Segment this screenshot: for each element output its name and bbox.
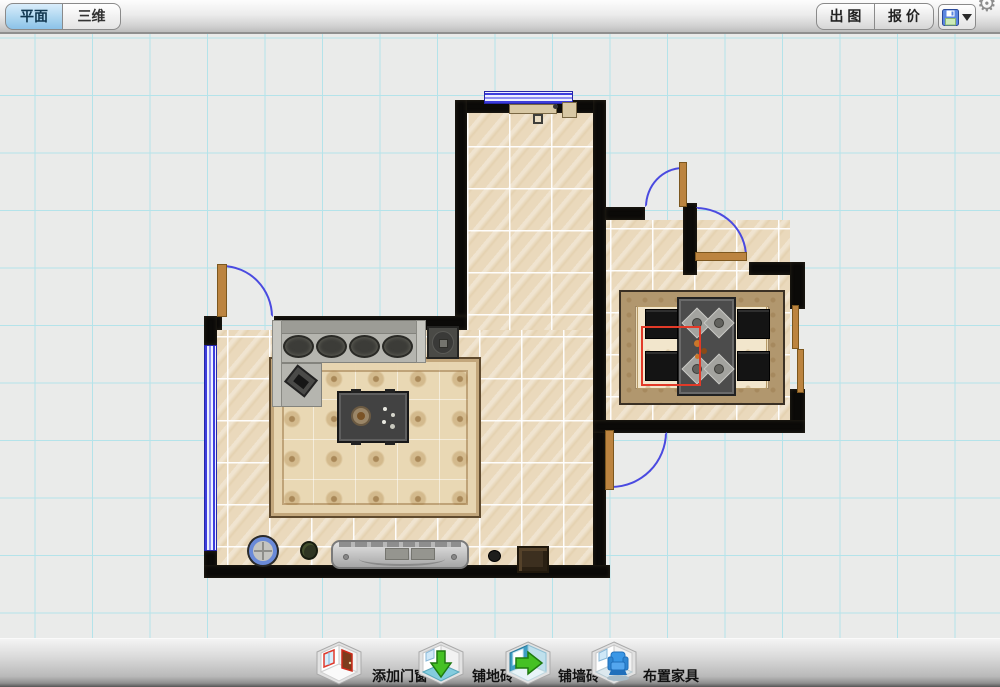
floor-fan[interactable]	[249, 537, 277, 565]
hall-console-table[interactable]	[509, 104, 557, 114]
side-table-lamp	[439, 339, 448, 348]
room-furniture-icon[interactable]	[588, 641, 640, 685]
output-buttons: 出 图 报 价	[816, 3, 934, 30]
petal	[391, 413, 395, 417]
tv-stand-knob	[343, 554, 349, 560]
dining-sw-door-swing-arc	[611, 432, 667, 488]
side-table[interactable]	[427, 326, 459, 359]
tray-inner	[293, 374, 309, 389]
tv-screen-arc	[359, 559, 445, 566]
corner-plant-box[interactable]	[517, 546, 549, 573]
living-door-swing-arc	[222, 265, 273, 317]
tv-stand-top-strip	[339, 542, 461, 547]
food-item	[701, 348, 707, 354]
save-button[interactable]	[938, 4, 976, 30]
quote-button[interactable]: 报 价	[875, 3, 934, 30]
sofa-cushion	[349, 335, 380, 358]
dining-chair[interactable]	[737, 351, 770, 381]
sofa-back[interactable]	[272, 320, 426, 334]
dining-chair[interactable]	[737, 309, 770, 339]
dining-east-wall-upper[interactable]	[790, 262, 805, 309]
small-dark-object[interactable]	[488, 550, 501, 562]
tv-stand-knob	[451, 554, 457, 560]
table-handle	[351, 441, 361, 445]
hall-small-stool[interactable]	[533, 114, 543, 124]
dining-northwest-wall[interactable]	[605, 207, 645, 220]
room-wall-tile-icon[interactable]	[502, 641, 554, 685]
gear-icon[interactable]: ⚙	[977, 0, 997, 17]
table-handle	[385, 389, 395, 393]
view-tabs: 平面 三维	[5, 3, 121, 30]
export-drawing-button[interactable]: 出 图	[816, 3, 875, 30]
save-dropdown-caret-icon[interactable]	[962, 14, 972, 21]
living-top-door[interactable]	[217, 264, 227, 317]
plate	[712, 362, 726, 376]
sofa-armrest-left	[272, 320, 282, 407]
living-left-wall-upper[interactable]	[204, 316, 217, 345]
sofa-armrest-right	[416, 320, 426, 363]
sofa-cushion	[283, 335, 314, 358]
potted-plant[interactable]	[300, 541, 318, 560]
dining-nw-door[interactable]	[679, 162, 687, 207]
hallway-window[interactable]	[484, 91, 573, 104]
table-handle	[385, 441, 395, 445]
dining-sliding-door-panel-1[interactable]	[792, 305, 799, 349]
toolbar-label-furniture: 布置家具	[643, 666, 699, 686]
corridor-east-wall[interactable]	[593, 100, 606, 578]
dining-sliding-door-panel-2[interactable]	[797, 349, 804, 393]
dining-nw-door-swing-arc	[645, 167, 683, 207]
floorplan-canvas[interactable]	[0, 34, 1000, 638]
room-floor-tile-icon[interactable]	[415, 641, 467, 685]
sofa-cushion	[382, 335, 413, 358]
tv-stand[interactable]	[331, 540, 469, 569]
dining-north-door-swing-arc	[696, 207, 747, 257]
petal	[390, 424, 395, 429]
bottom-toolbar: 添加门窗 铺地砖 铺墙砖 布置家具	[0, 638, 1000, 687]
tab-plan-view[interactable]: 平面	[5, 3, 63, 30]
plate-food	[357, 412, 365, 420]
floppy-disk-icon	[942, 9, 959, 26]
plate	[712, 316, 726, 330]
petal	[383, 407, 387, 411]
hallway-floor[interactable]	[467, 104, 593, 330]
living-room-window[interactable]	[204, 345, 217, 551]
title-bar: 平面 三维 出 图 报 价 ⚙	[0, 0, 1000, 34]
dining-sw-door[interactable]	[605, 430, 614, 490]
selection-rectangle	[641, 326, 701, 386]
dining-north-door[interactable]	[695, 252, 747, 261]
hall-cabinet[interactable]	[562, 102, 577, 118]
sofa-cushion	[316, 335, 347, 358]
petal	[382, 420, 386, 424]
table-handle	[351, 389, 361, 393]
room-door-window-icon[interactable]	[313, 641, 365, 685]
tab-3d-view[interactable]: 三维	[63, 3, 121, 30]
coffee-table-plate	[351, 406, 371, 426]
hall-decor-dot	[553, 104, 558, 109]
hallway-left-wall[interactable]	[455, 100, 467, 316]
dining-wall-pillar[interactable]	[683, 203, 697, 275]
coffee-table[interactable]	[337, 391, 409, 443]
